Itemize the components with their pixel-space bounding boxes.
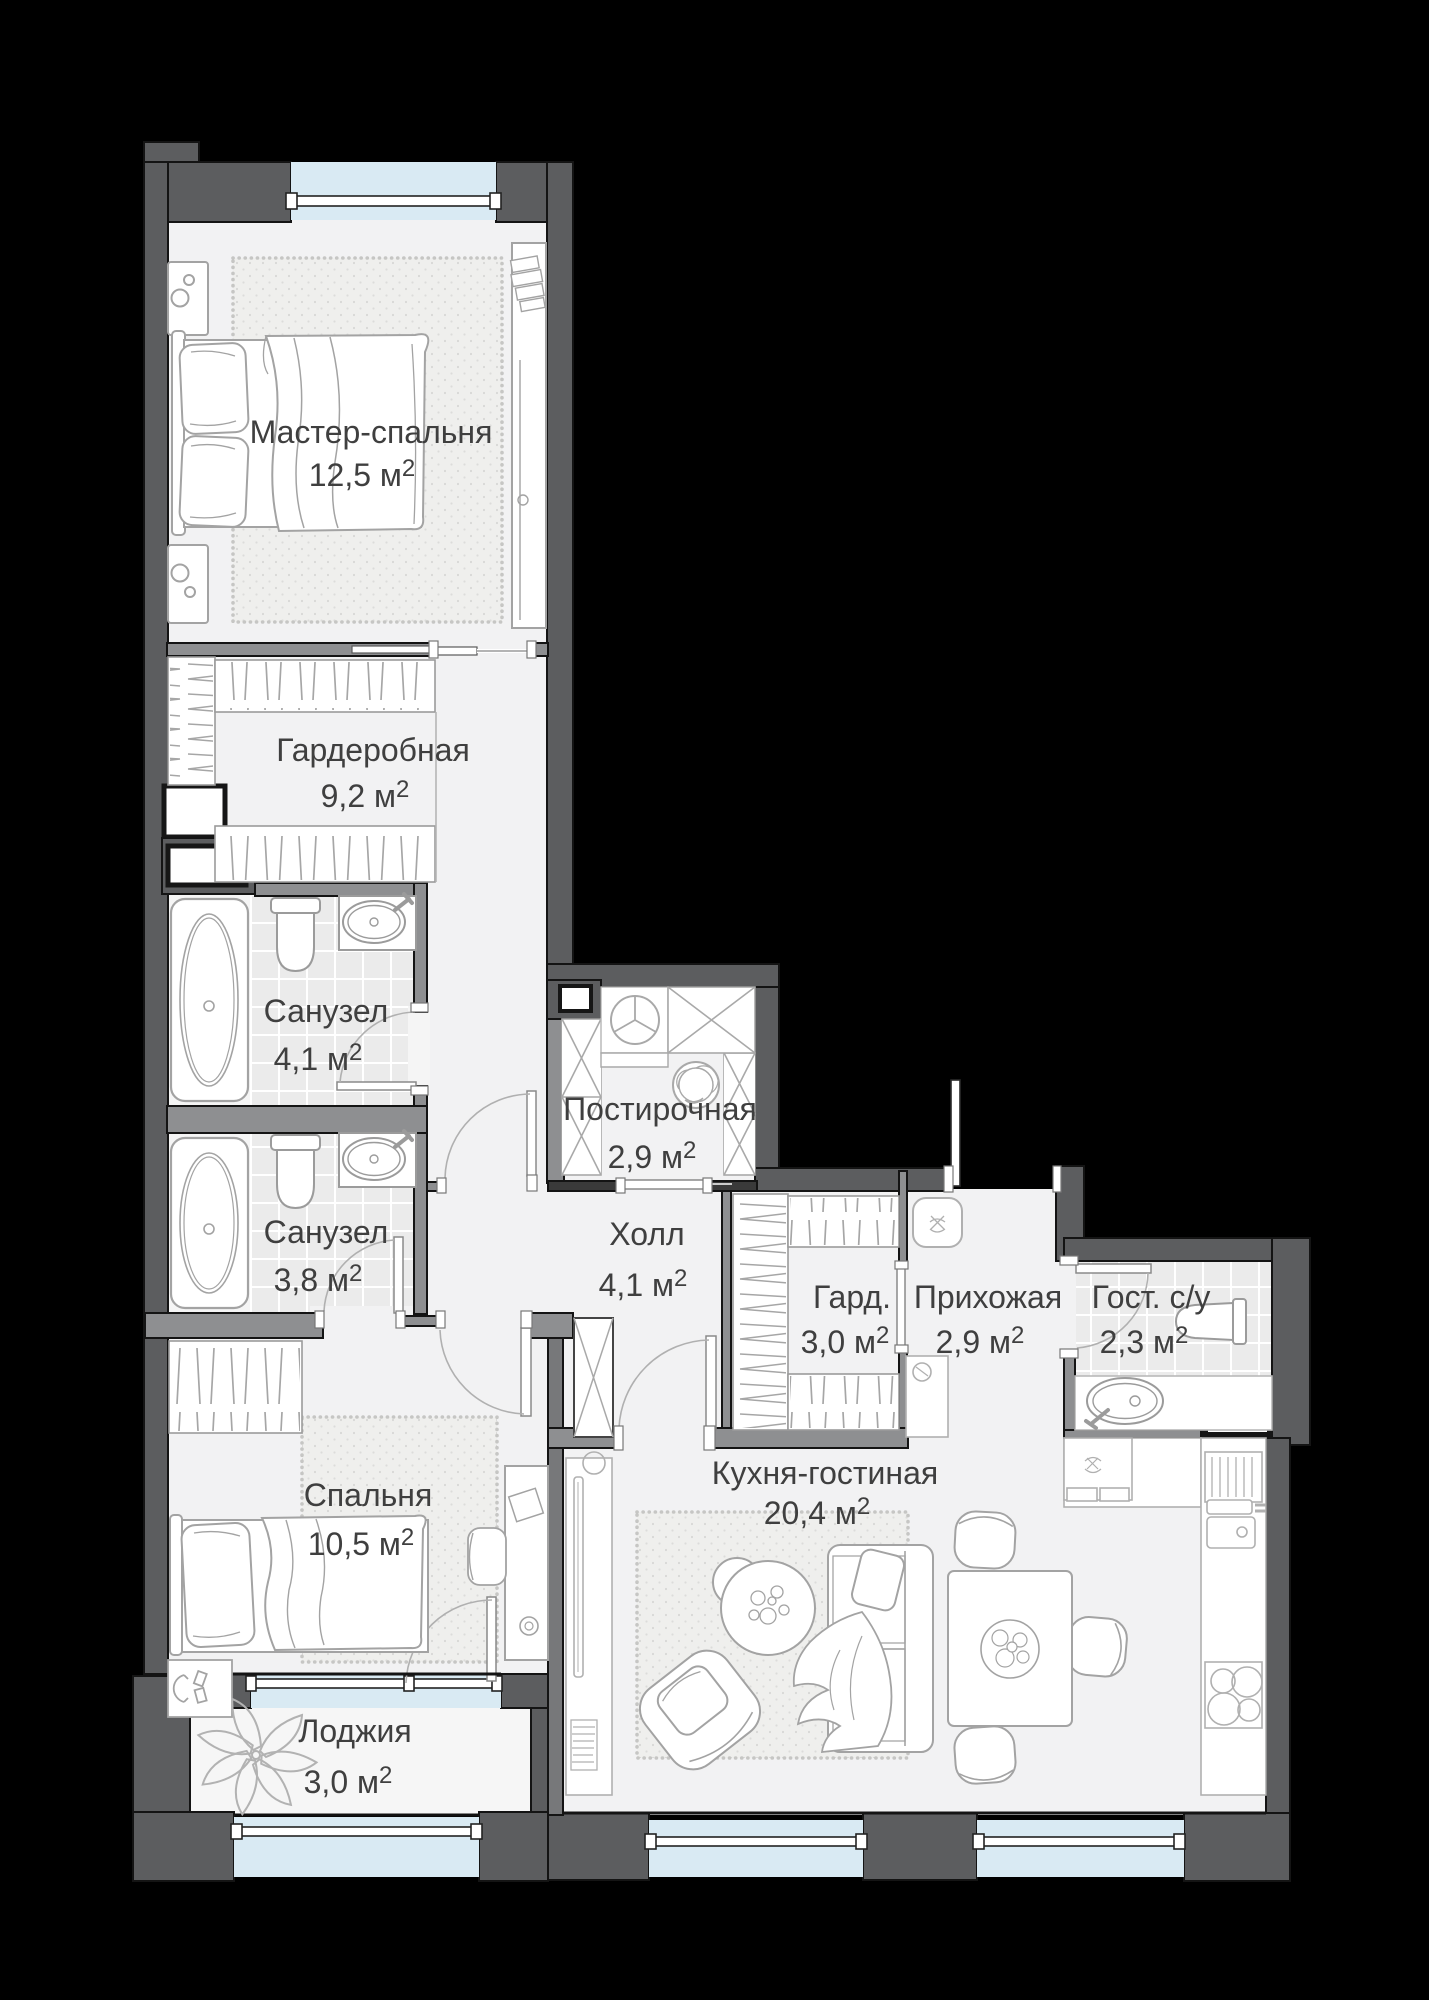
svg-text:10,5 м2: 10,5 м2 [308, 1524, 415, 1562]
svg-text:Гост. с/у: Гост. с/у [1092, 1279, 1211, 1315]
svg-text:Гард.: Гард. [813, 1279, 891, 1315]
svg-text:Санузел: Санузел [264, 1214, 389, 1250]
svg-text:Лоджия: Лоджия [298, 1713, 411, 1749]
svg-text:Прихожая: Прихожая [914, 1279, 1062, 1315]
svg-text:Холл: Холл [609, 1216, 684, 1252]
svg-text:Спальня: Спальня [304, 1477, 433, 1513]
svg-text:Мастер-спальня: Мастер-спальня [250, 414, 493, 450]
svg-text:12,5 м2: 12,5 м2 [309, 455, 416, 493]
svg-text:Гардеробная: Гардеробная [276, 732, 470, 768]
svg-text:Постирочная: Постирочная [563, 1091, 757, 1127]
svg-text:Санузел: Санузел [264, 993, 389, 1029]
svg-text:Кухня-гостиная: Кухня-гостиная [712, 1455, 938, 1491]
svg-text:20,4 м2: 20,4 м2 [764, 1493, 871, 1531]
